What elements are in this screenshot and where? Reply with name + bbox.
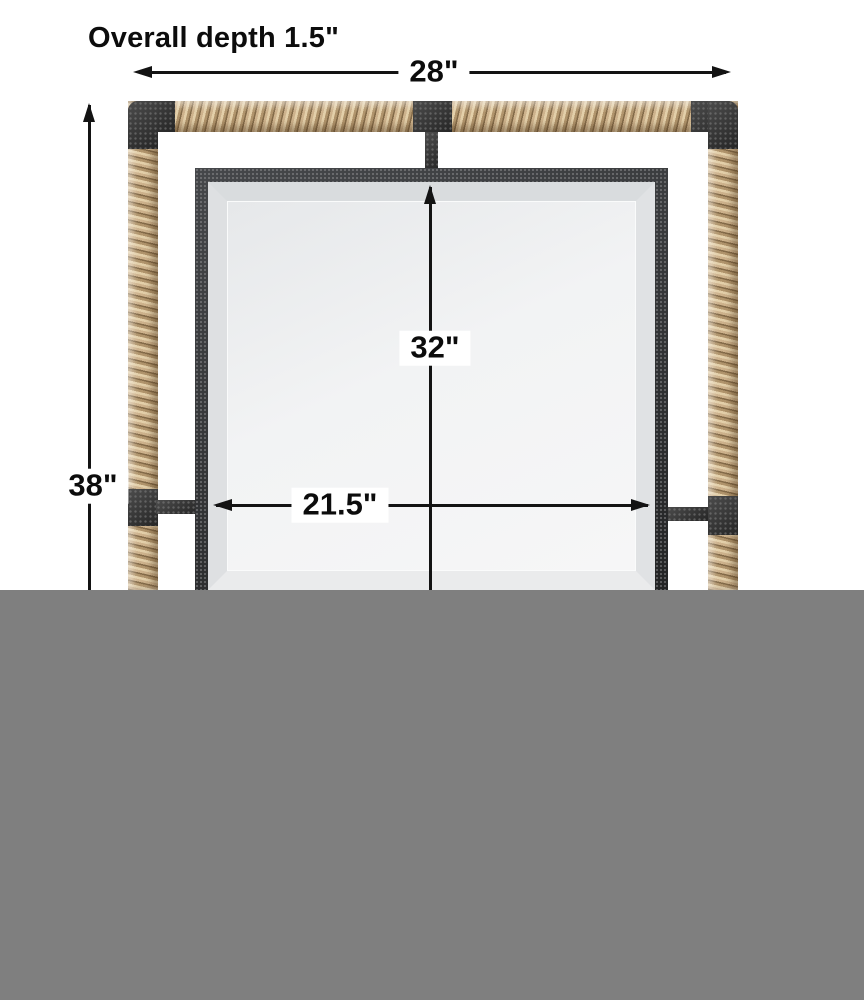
overall-height-label: 38" xyxy=(57,469,128,504)
metal-corner-top-right-v xyxy=(708,101,738,149)
mirror-width-label: 21.5" xyxy=(291,488,388,523)
metal-post-right-middle xyxy=(667,507,708,521)
mirror-height-label: 32" xyxy=(399,331,470,366)
overall-width-label: 28" xyxy=(398,55,469,90)
arrowhead-left-icon xyxy=(133,66,152,78)
mirror-height-dimension-line xyxy=(429,187,432,590)
arrowhead-right-icon xyxy=(712,66,731,78)
overall-height-dimension-line xyxy=(88,105,91,590)
mirror-width-dimension-line xyxy=(216,504,648,507)
metal-sleeve-right-middle xyxy=(708,496,738,535)
arrowhead-up-icon xyxy=(83,103,95,122)
metal-corner-top-left-v xyxy=(128,101,158,149)
overall-depth-label: Overall depth 1.5" xyxy=(88,22,339,55)
arrowhead-right-icon xyxy=(631,499,650,511)
arrowhead-left-icon xyxy=(213,499,232,511)
arrowhead-up-icon xyxy=(424,185,436,204)
gray-crop-overlay xyxy=(0,590,864,1000)
product-dimension-diagram: Overall depth 1.5" 28" 38" 32" 21.5" xyxy=(0,0,864,1000)
metal-post-left-middle xyxy=(156,500,196,514)
metal-post-top-center xyxy=(425,132,438,172)
metal-sleeve-top-center xyxy=(413,101,452,132)
metal-sleeve-left-middle xyxy=(128,489,158,526)
